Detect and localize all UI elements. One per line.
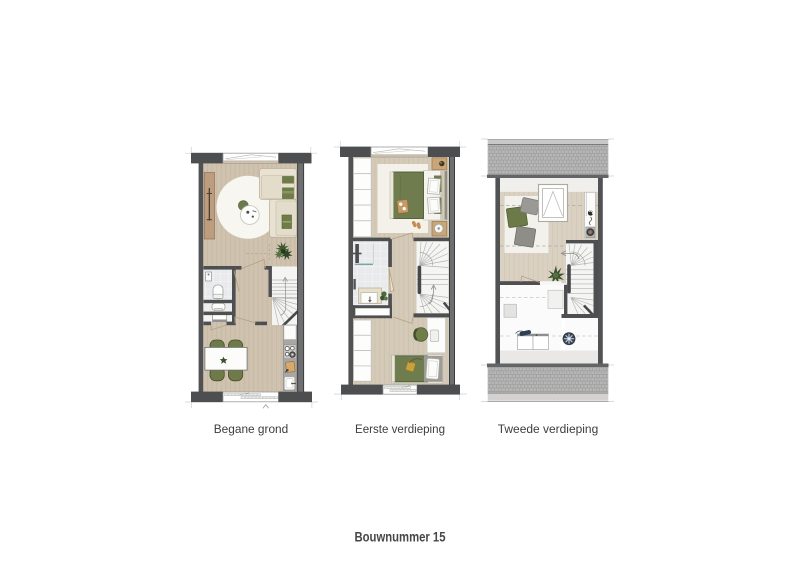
svg-text:Eerste verdieping: Eerste verdieping <box>355 422 445 436</box>
svg-text:Tweede verdieping: Tweede verdieping <box>498 422 599 436</box>
svg-text:Begane grond: Begane grond <box>214 422 289 436</box>
svg-text:Bouwnummer 15: Bouwnummer 15 <box>355 530 446 545</box>
